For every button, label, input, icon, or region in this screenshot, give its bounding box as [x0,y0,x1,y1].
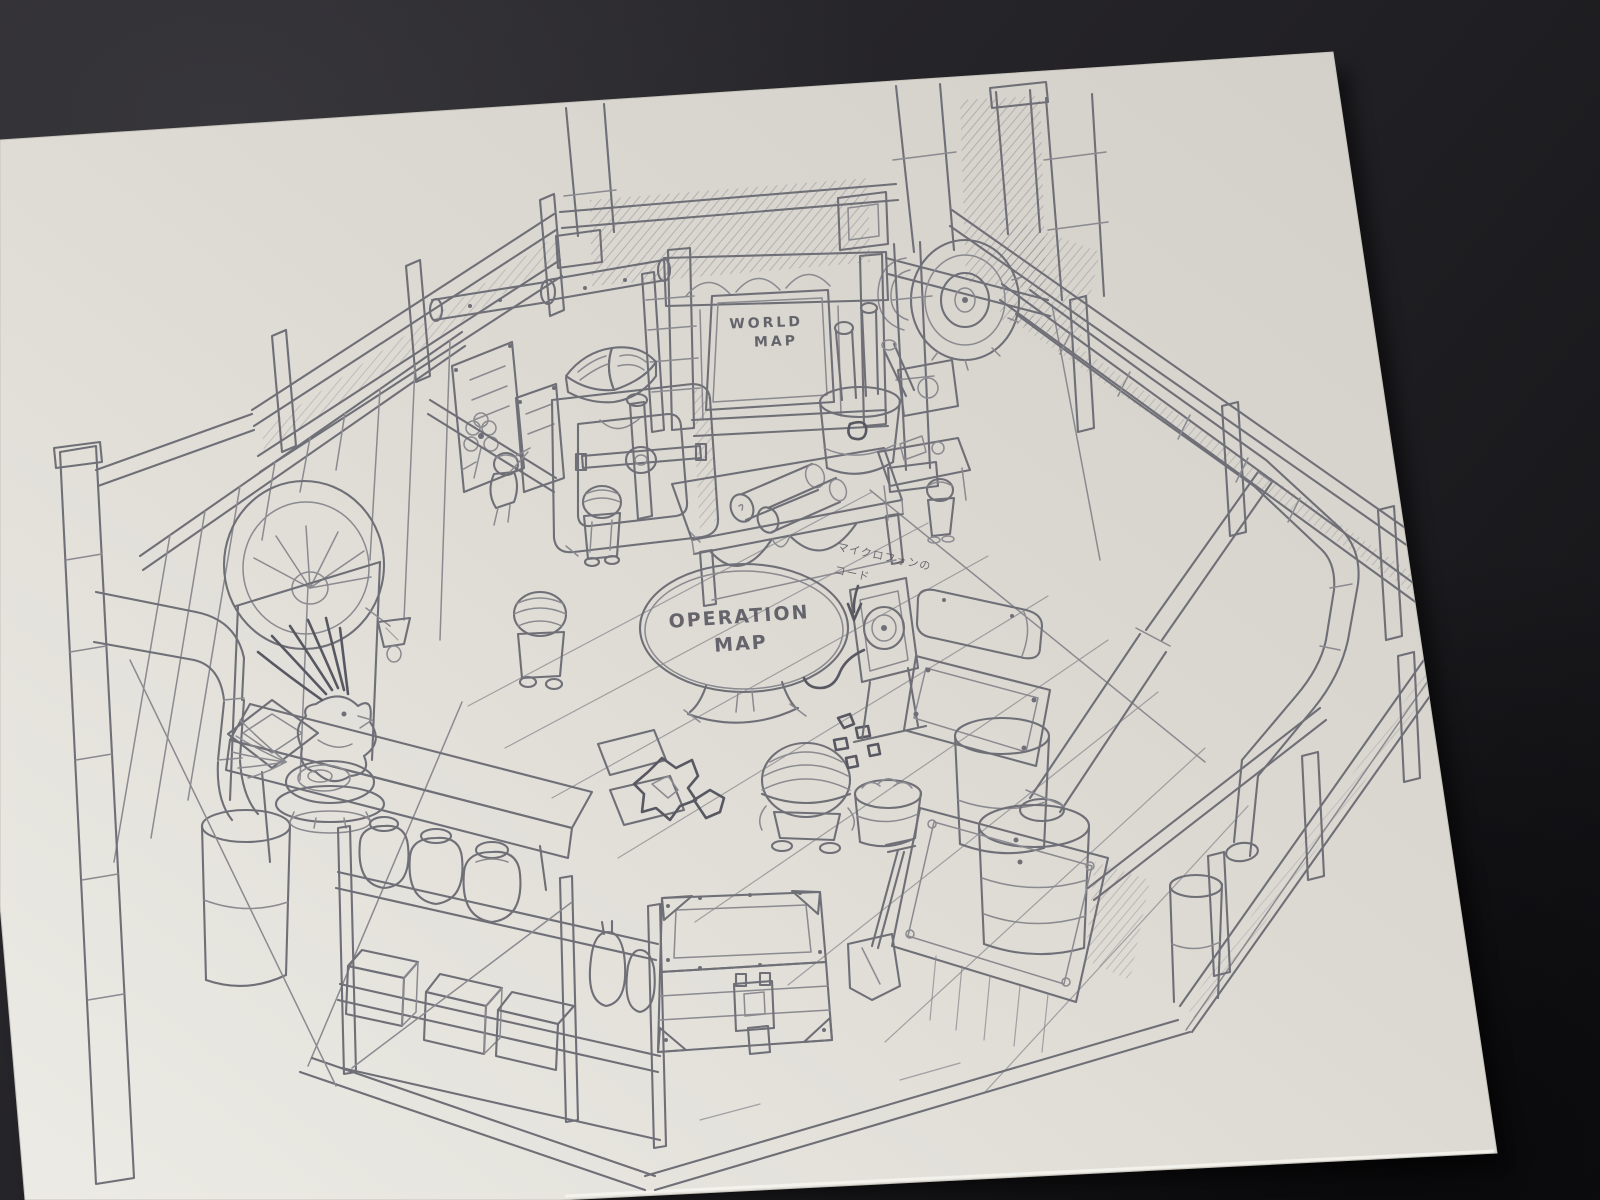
photo-of-sketch: WORLD MAP OPERATION MAP マイクロフォンの コード [0,0,1600,1200]
world-map-label-line1: WORLD [729,314,803,333]
world-map-label-line2: MAP [754,333,799,351]
world-map-label: WORLD MAP [701,313,843,374]
